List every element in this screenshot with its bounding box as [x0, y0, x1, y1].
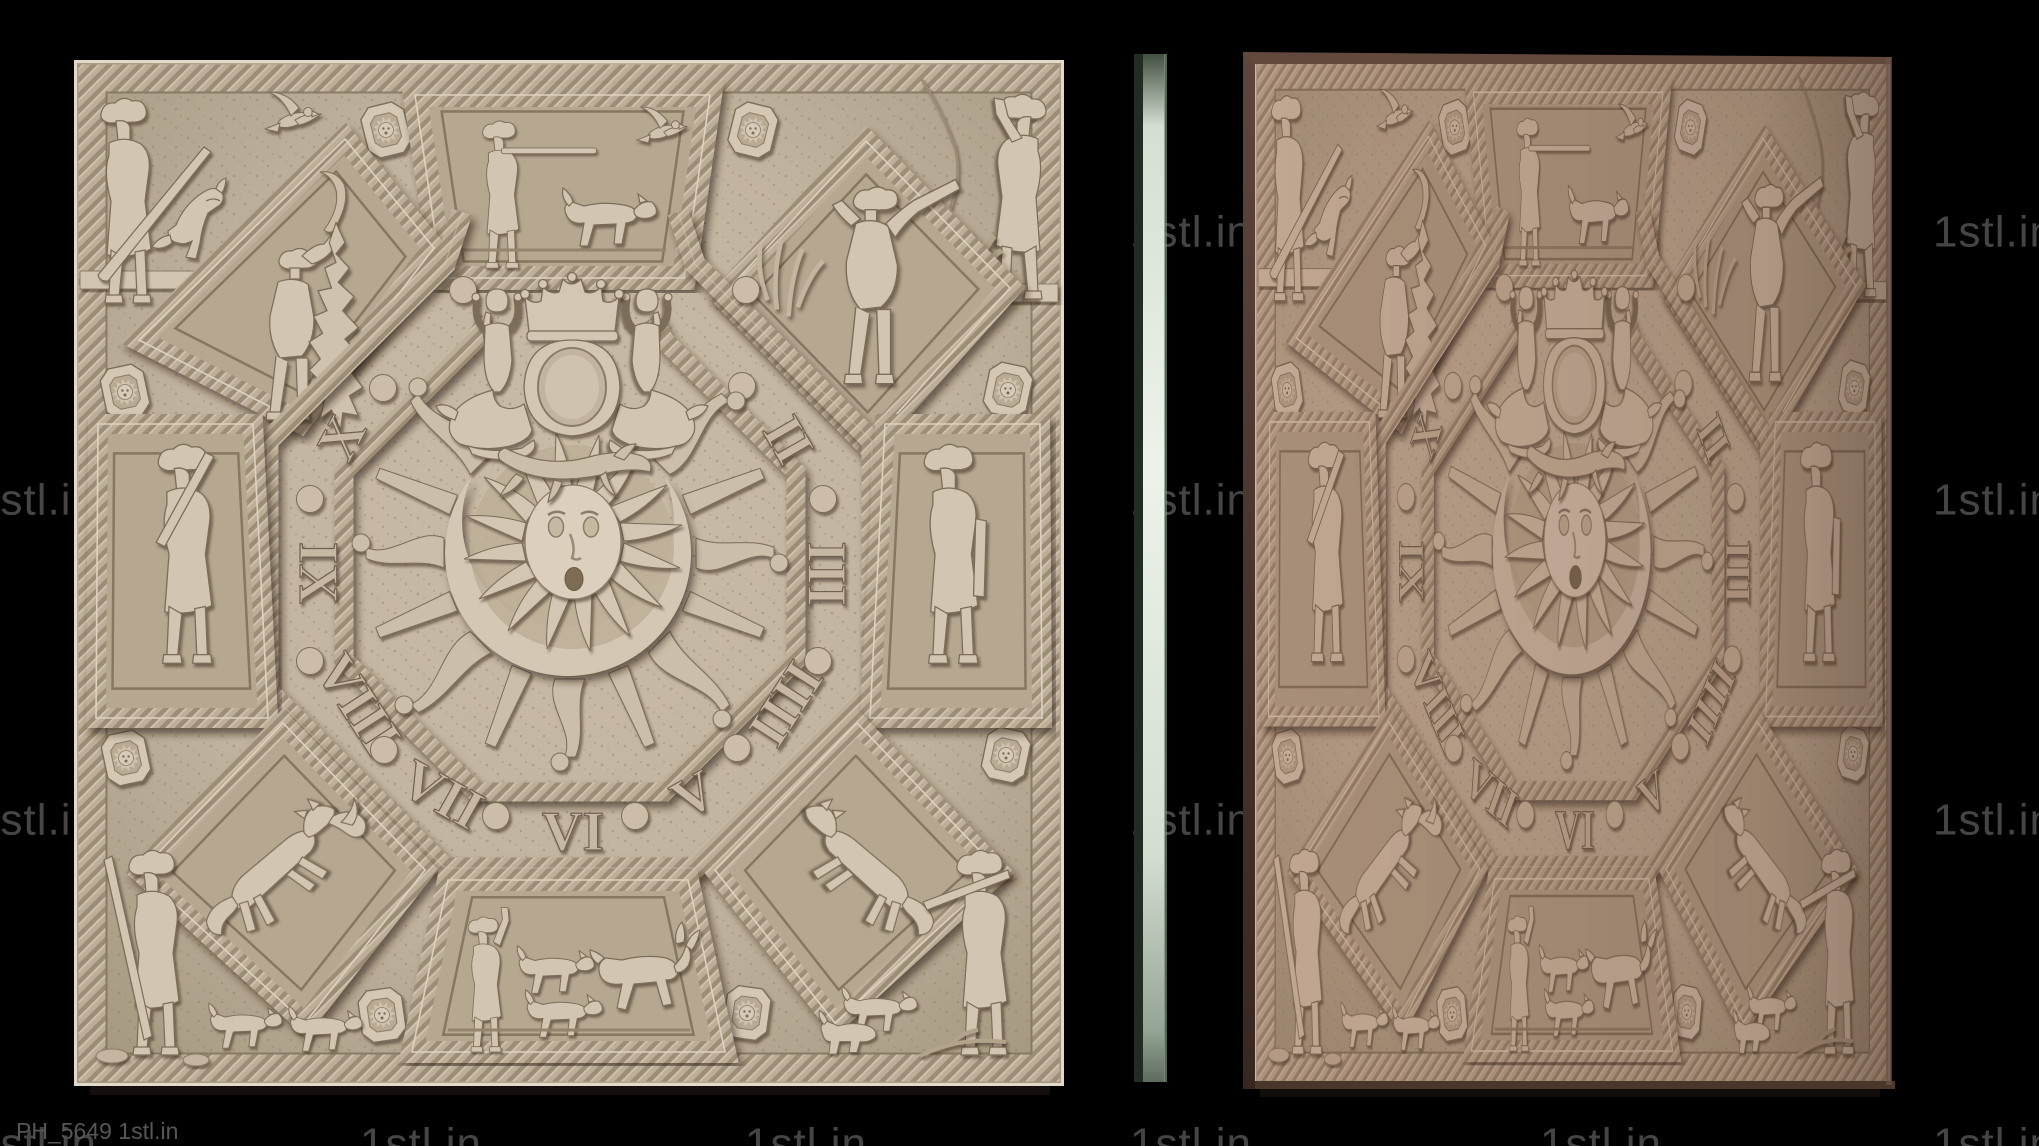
svg-text:1stl.in: 1stl.in	[1130, 1120, 1252, 1146]
svg-text:1stl.in: 1stl.in	[1933, 1120, 2039, 1146]
svg-text:1stl.in: 1stl.in	[1933, 796, 2039, 845]
svg-text:1stl.in: 1stl.in	[1933, 208, 2039, 257]
svg-text:1stl.in: 1stl.in	[360, 1120, 482, 1146]
svg-text:PH_5649 1stl.in: PH_5649 1stl.in	[16, 1118, 178, 1144]
svg-text:1stl.in: 1stl.in	[1540, 1120, 1662, 1146]
svg-text:1stl.in: 1stl.in	[745, 1120, 867, 1146]
svg-text:1stl.in: 1stl.in	[1933, 476, 2039, 525]
